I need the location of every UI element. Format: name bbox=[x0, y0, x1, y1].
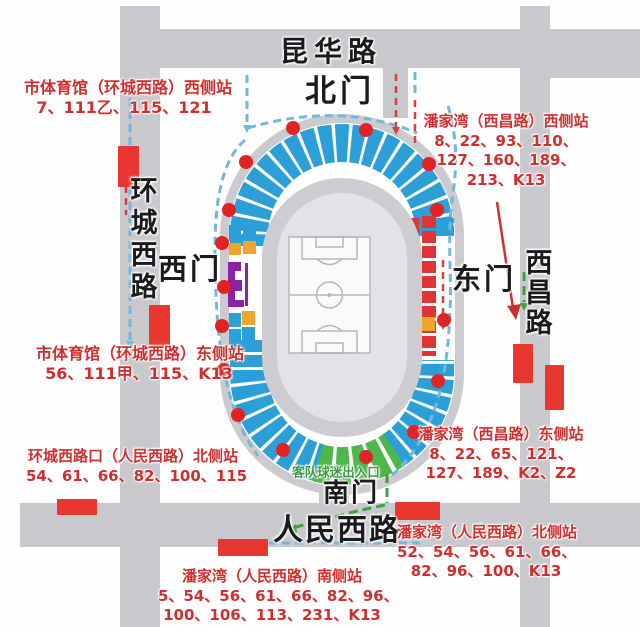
station-label-shitiyuguan-east: 市体育馆（环城西路）东侧站 56、111甲、115、K13 bbox=[36, 344, 242, 384]
station-label-panjiawan-renmin-south: 潘家湾（人民西路）南侧站 5、54、56、61、66、82、96、 100、10… bbox=[158, 567, 386, 626]
visiting-fans-entrance-label: 客队球迷出入口 bbox=[292, 462, 380, 481]
bus-stop-marker-renmin-northwest bbox=[57, 499, 97, 515]
bus-stop-marker-renmin-south bbox=[218, 539, 268, 556]
road-label-kunhualu: 昆华路 bbox=[280, 30, 382, 70]
gate-label-west: 西门 bbox=[158, 246, 222, 288]
road-label-xichanglu: 西昌路 bbox=[517, 248, 556, 338]
road-label-huanchengxilu: 环城西路 bbox=[122, 176, 161, 304]
west-stand-vip-purple bbox=[228, 262, 248, 307]
bus-stop-marker-renmin-northeast bbox=[395, 502, 440, 520]
road-kunhualu-east-segment bbox=[550, 29, 640, 78]
road-label-renminxilu: 人民西路 bbox=[273, 505, 401, 549]
station-label-huanchengxilukou-north: 环城西路口（人民西路）北侧站 54、61、66、82、100、115 bbox=[26, 447, 240, 486]
station-label-shitiyuguan-west: 市体育馆（环城西路）西侧站 7、111乙、115、121 bbox=[24, 78, 224, 118]
stadium-transit-map: 昆华路 环城西路 西昌路 人民西路 北门 西门 东门 南门 客队球迷出入口 市体… bbox=[0, 0, 640, 627]
station-label-panjiawan-renmin-north: 潘家湾（人民西路）北侧站 52、54、56、61、66、 82、96、100、K… bbox=[397, 523, 575, 582]
gate-label-east: 东门 bbox=[452, 256, 516, 298]
bus-stop-marker-xichang-east bbox=[545, 365, 564, 410]
bus-stop-marker-xichang-west bbox=[513, 344, 533, 383]
station-label-panjiawan-xichang-east: 潘家湾（西昌路）东侧站 8、22、65、121、 127、189、K2、Z2 bbox=[413, 425, 589, 484]
station-label-panjiawan-xichang-west: 潘家湾（西昌路）西侧站 8、22、93、110、 127、160、189、 21… bbox=[418, 112, 594, 190]
bus-stop-marker-huancheng-east bbox=[149, 305, 170, 347]
east-stand-orange-block bbox=[420, 317, 435, 331]
football-pitch bbox=[289, 237, 370, 353]
gate-label-north: 北门 bbox=[305, 66, 375, 111]
